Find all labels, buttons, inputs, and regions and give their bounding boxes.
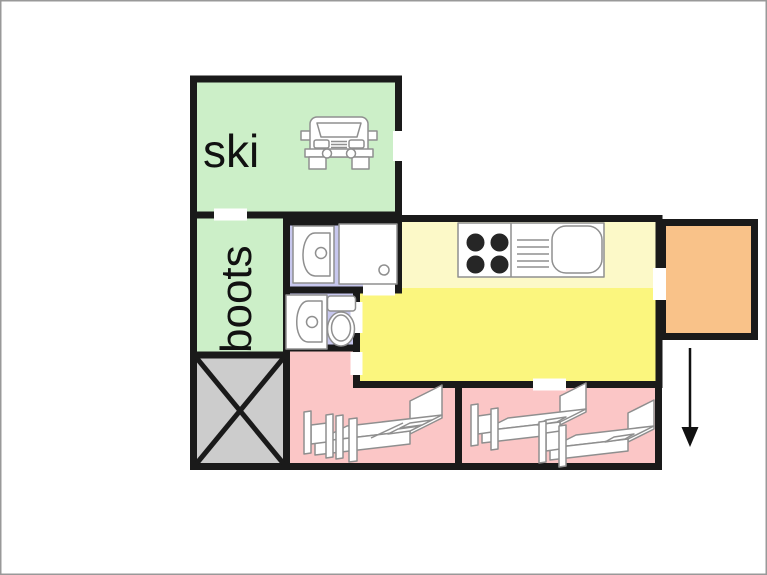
washbasin-icon <box>293 226 334 283</box>
floor-plan-canvas: ski boots <box>0 0 767 575</box>
washbasin-icon <box>286 295 327 349</box>
ski-label: ski <box>203 125 259 177</box>
door-gap-hall-bedroom-right <box>533 379 566 391</box>
door-gap-ski-boots <box>214 209 247 221</box>
door-gap-hall-bathroom <box>363 284 395 296</box>
toilet-icon <box>328 296 356 346</box>
kitchen-sink-icon <box>552 226 602 273</box>
door-gap-kitchen-porch <box>653 268 666 300</box>
door-gap-hall-bedroom-left <box>351 352 363 375</box>
boots-label: boots <box>212 245 261 353</box>
kitchen-counter <box>458 223 604 277</box>
entrance-arrow-icon <box>682 348 699 447</box>
shower-icon <box>339 224 397 284</box>
door-gap-ski-right <box>393 131 405 161</box>
room-porch <box>663 223 755 337</box>
